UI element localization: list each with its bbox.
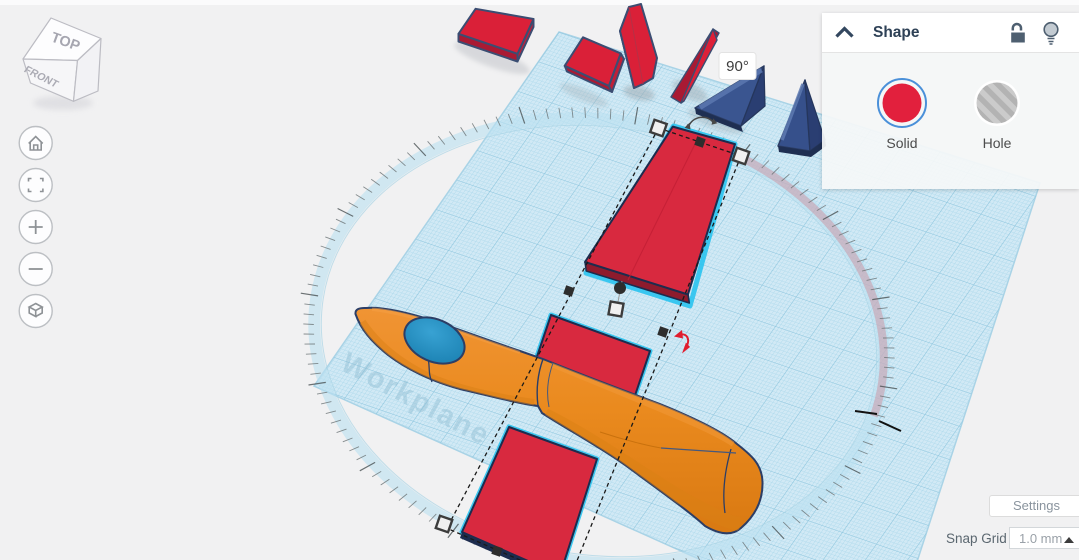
svg-text:90°: 90°	[726, 58, 749, 75]
